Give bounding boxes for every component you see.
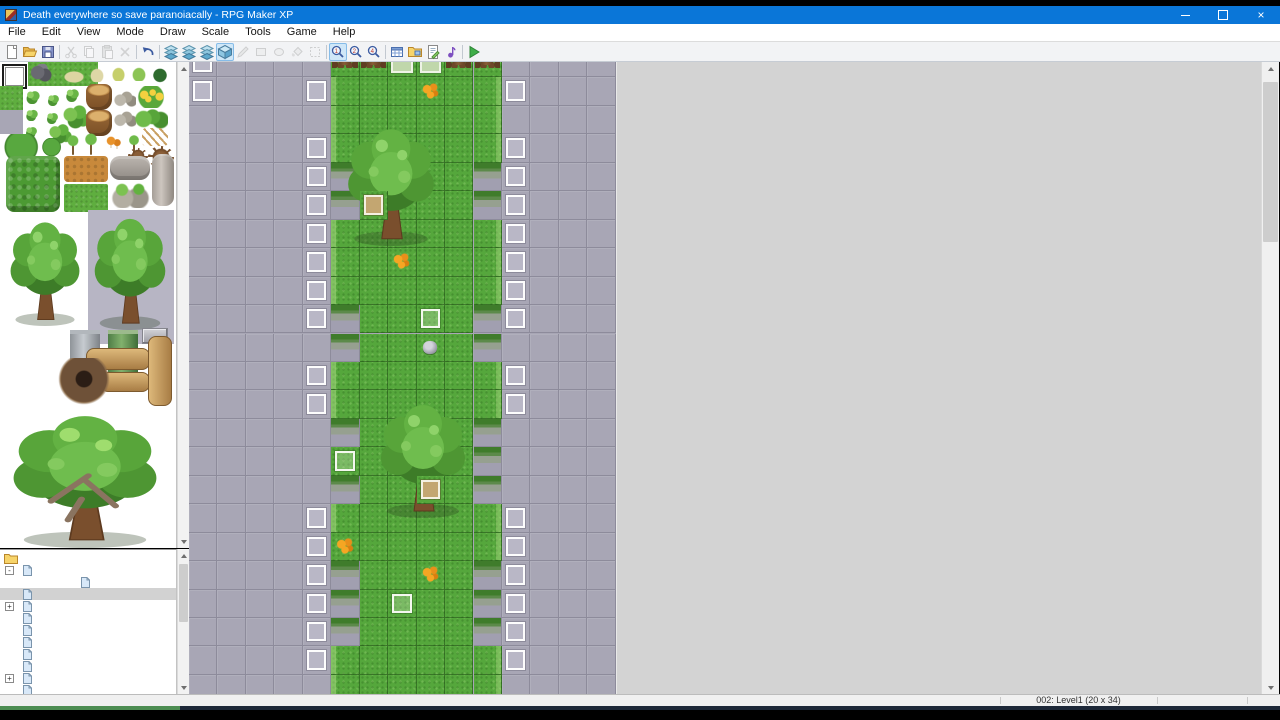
layer-3-button[interactable] xyxy=(198,43,216,61)
gray-tile[interactable] xyxy=(587,305,615,333)
gray-tile[interactable] xyxy=(587,362,615,390)
tree-item-level7[interactable] xyxy=(0,660,176,672)
gray-tile[interactable] xyxy=(274,362,302,390)
cliff-ledge-tile[interactable] xyxy=(331,419,359,447)
gray-tile[interactable] xyxy=(587,618,615,646)
gray-tile[interactable] xyxy=(530,220,558,248)
cliff-ledge-tile[interactable] xyxy=(474,590,502,618)
palette-tile-bush-dark[interactable] xyxy=(150,66,170,83)
grass-tile[interactable] xyxy=(445,646,473,674)
grass-tile[interactable] xyxy=(445,590,473,618)
gray-tile[interactable] xyxy=(246,618,274,646)
gray-tile[interactable] xyxy=(274,106,302,134)
menu-item-edit[interactable]: Edit xyxy=(34,24,69,41)
gray-tile[interactable] xyxy=(189,277,217,305)
gray-tile[interactable] xyxy=(217,220,245,248)
palette-tile-log-tall[interactable] xyxy=(152,154,174,206)
grass-right-edge[interactable] xyxy=(474,277,502,305)
gray-tile[interactable] xyxy=(189,561,217,589)
event-box-on-gray[interactable] xyxy=(303,504,331,532)
gray-tile[interactable] xyxy=(303,334,331,362)
event-box-on-gray[interactable] xyxy=(502,590,530,618)
grass-tile[interactable] xyxy=(417,248,445,276)
grass-left-edge[interactable] xyxy=(331,646,359,674)
cliff-ledge-tile[interactable] xyxy=(474,305,502,333)
gray-tile[interactable] xyxy=(217,305,245,333)
grass-tile[interactable] xyxy=(445,675,473,694)
event-box-on-gray[interactable] xyxy=(502,163,530,191)
menu-item-scale[interactable]: Scale xyxy=(194,24,238,41)
grass-tile[interactable] xyxy=(445,362,473,390)
gray-tile[interactable] xyxy=(217,447,245,475)
gray-tile[interactable] xyxy=(587,419,615,447)
gray-tile[interactable] xyxy=(530,334,558,362)
gray-tile[interactable] xyxy=(246,390,274,418)
cliff-ledge-tile[interactable] xyxy=(474,618,502,646)
gray-tile[interactable] xyxy=(189,675,217,694)
event-box-on-gray[interactable] xyxy=(303,277,331,305)
cliff-ledge-tile[interactable] xyxy=(474,334,502,362)
gray-tile[interactable] xyxy=(189,220,217,248)
scroll-thumb[interactable] xyxy=(1263,82,1278,242)
grass-tile[interactable] xyxy=(360,561,388,589)
event-box-on-gray[interactable] xyxy=(502,533,530,561)
palette-tile-rocks-mossy[interactable] xyxy=(110,182,150,208)
event-box-on-gray[interactable] xyxy=(303,191,331,219)
grass-tile[interactable] xyxy=(360,618,388,646)
grass-tile[interactable] xyxy=(445,77,473,105)
tree-item-level8[interactable]: + xyxy=(0,672,176,684)
gray-tile[interactable] xyxy=(217,504,245,532)
tree-item-level9[interactable] xyxy=(0,684,176,694)
gray-tile[interactable] xyxy=(274,163,302,191)
grass-tile[interactable] xyxy=(388,277,416,305)
event-box-green[interactable] xyxy=(388,62,416,77)
gray-tile[interactable] xyxy=(274,220,302,248)
gray-tile[interactable] xyxy=(189,106,217,134)
grass-right-edge[interactable] xyxy=(474,533,502,561)
gray-tile[interactable] xyxy=(246,334,274,362)
gray-tile[interactable] xyxy=(274,646,302,674)
tree-item-level2[interactable]: + xyxy=(0,600,176,612)
grass-tile[interactable] xyxy=(388,305,416,333)
event-box-on-gray[interactable] xyxy=(303,134,331,162)
cliff-ledge-tile[interactable] xyxy=(331,590,359,618)
gray-tile[interactable] xyxy=(587,134,615,162)
gray-tile[interactable] xyxy=(189,362,217,390)
gray-tile[interactable] xyxy=(274,277,302,305)
gray-tile[interactable] xyxy=(530,419,558,447)
gray-tile[interactable] xyxy=(189,305,217,333)
gray-tile[interactable] xyxy=(217,62,245,77)
gray-tile[interactable] xyxy=(246,504,274,532)
event-box-dirt[interactable] xyxy=(417,476,445,504)
gray-tile[interactable] xyxy=(217,618,245,646)
gray-tile[interactable] xyxy=(217,533,245,561)
palette-tile-bush[interactable] xyxy=(64,88,80,102)
gray-tile[interactable] xyxy=(587,248,615,276)
gray-tile[interactable] xyxy=(559,447,587,475)
menu-item-mode[interactable]: Mode xyxy=(108,24,152,41)
gray-tile[interactable] xyxy=(530,646,558,674)
event-box-on-gray[interactable] xyxy=(502,134,530,162)
tree-item-level5[interactable] xyxy=(0,636,176,648)
gray-tile[interactable] xyxy=(530,163,558,191)
cliff-ledge-tile[interactable] xyxy=(331,476,359,504)
grass-right-edge[interactable] xyxy=(474,77,502,105)
playtest-button[interactable] xyxy=(465,43,483,61)
tileset-palette[interactable] xyxy=(0,62,177,548)
gray-tile[interactable] xyxy=(246,77,274,105)
event-box-on-gray[interactable] xyxy=(502,277,530,305)
event-box-on-gray[interactable] xyxy=(303,618,331,646)
gray-tile[interactable] xyxy=(274,504,302,532)
gray-tile[interactable] xyxy=(246,476,274,504)
tree-trunk-top[interactable] xyxy=(445,62,473,77)
tree-trunk-top[interactable] xyxy=(360,62,388,77)
gray-tile[interactable] xyxy=(274,675,302,694)
palette-tile-sapling[interactable] xyxy=(66,134,80,158)
gray-tile[interactable] xyxy=(587,476,615,504)
scroll-down-arrow[interactable] xyxy=(178,535,189,548)
palette-tile-bushes-green[interactable] xyxy=(134,108,168,130)
event-box-on-gray[interactable] xyxy=(303,646,331,674)
gray-tile[interactable] xyxy=(530,62,558,77)
event-box-on-gray[interactable] xyxy=(502,390,530,418)
gray-tile[interactable] xyxy=(246,447,274,475)
event-box-on-gray[interactable] xyxy=(502,646,530,674)
cliff-ledge-tile[interactable] xyxy=(331,618,359,646)
event-box-on-gray[interactable] xyxy=(502,191,530,219)
gray-tile[interactable] xyxy=(502,334,530,362)
gray-tile[interactable] xyxy=(559,106,587,134)
cliff-ledge-tile[interactable] xyxy=(474,447,502,475)
palette-scrollbar[interactable] xyxy=(177,62,189,548)
event-box-on-gray[interactable] xyxy=(502,618,530,646)
grass-tile[interactable] xyxy=(360,646,388,674)
collapse-toggle[interactable]: - xyxy=(5,566,14,575)
tree-item-level0[interactable]: - xyxy=(0,564,176,576)
grass-tile[interactable] xyxy=(445,163,473,191)
gray-tile[interactable] xyxy=(274,305,302,333)
palette-tile-tuft-green[interactable] xyxy=(130,65,148,81)
gray-tile[interactable] xyxy=(587,106,615,134)
gray-tile[interactable] xyxy=(217,334,245,362)
grass-tile[interactable] xyxy=(360,533,388,561)
gray-tile[interactable] xyxy=(217,362,245,390)
gray-tile[interactable] xyxy=(502,62,530,77)
undo-button[interactable] xyxy=(139,43,157,61)
gray-tile[interactable] xyxy=(530,447,558,475)
maximize-button[interactable] xyxy=(1204,6,1242,24)
gray-tile[interactable] xyxy=(502,447,530,475)
gray-tile[interactable] xyxy=(217,134,245,162)
orange-flowers[interactable] xyxy=(331,533,359,561)
palette-tile-bush[interactable] xyxy=(45,112,59,124)
expand-toggle[interactable]: + xyxy=(5,602,14,611)
gray-tile[interactable] xyxy=(274,533,302,561)
event-box-green[interactable] xyxy=(417,62,445,77)
gray-tile[interactable] xyxy=(530,504,558,532)
event-box-on-gray[interactable] xyxy=(189,62,217,77)
scroll-up-arrow[interactable] xyxy=(178,549,189,562)
palette-tile-hedge[interactable] xyxy=(6,156,60,212)
tree-item-level6[interactable] xyxy=(0,648,176,660)
gray-tile[interactable] xyxy=(559,646,587,674)
tree-trunk-top[interactable] xyxy=(474,62,502,77)
grass-right-edge[interactable] xyxy=(474,504,502,532)
orange-flowers[interactable] xyxy=(388,248,416,276)
event-box-on-gray[interactable] xyxy=(502,504,530,532)
gray-tile[interactable] xyxy=(587,163,615,191)
event-box-on-gray[interactable] xyxy=(502,220,530,248)
gray-tile[interactable] xyxy=(587,561,615,589)
gray-tile[interactable] xyxy=(189,163,217,191)
save-project-button[interactable] xyxy=(39,43,57,61)
grass-right-edge[interactable] xyxy=(474,220,502,248)
gray-tile[interactable] xyxy=(246,419,274,447)
gray-tile[interactable] xyxy=(246,248,274,276)
event-box-on-gray[interactable] xyxy=(303,163,331,191)
gray-tile[interactable] xyxy=(559,191,587,219)
palette-tile-big-tree[interactable] xyxy=(0,408,170,548)
gray-tile[interactable] xyxy=(587,646,615,674)
gray-tile[interactable] xyxy=(274,77,302,105)
menu-item-help[interactable]: Help xyxy=(325,24,364,41)
grass-right-edge[interactable] xyxy=(474,248,502,276)
grass-tile[interactable] xyxy=(445,277,473,305)
new-project-button[interactable] xyxy=(3,43,21,61)
gray-tile[interactable] xyxy=(303,419,331,447)
cliff-ledge-tile[interactable] xyxy=(474,419,502,447)
palette-tile-log-gray[interactable] xyxy=(110,156,150,180)
gray-tile[interactable] xyxy=(559,134,587,162)
gray-tile[interactable] xyxy=(559,277,587,305)
gray-tile[interactable] xyxy=(587,590,615,618)
event-box-on-gray[interactable] xyxy=(303,77,331,105)
gray-tile[interactable] xyxy=(502,476,530,504)
event-box-on-gray[interactable] xyxy=(502,248,530,276)
grass-tile[interactable] xyxy=(388,334,416,362)
event-box-on-gray[interactable] xyxy=(303,220,331,248)
gray-tile[interactable] xyxy=(189,191,217,219)
gray-tile[interactable] xyxy=(530,134,558,162)
gray-tile[interactable] xyxy=(303,476,331,504)
grass-left-edge[interactable] xyxy=(331,248,359,276)
close-button[interactable]: × xyxy=(1242,6,1280,24)
gray-tile[interactable] xyxy=(274,134,302,162)
gray-tile[interactable] xyxy=(246,646,274,674)
gray-tile[interactable] xyxy=(530,106,558,134)
gray-tile[interactable] xyxy=(274,618,302,646)
gray-tile[interactable] xyxy=(559,362,587,390)
grass-left-edge[interactable] xyxy=(331,362,359,390)
menu-item-tools[interactable]: Tools xyxy=(237,24,279,41)
orange-flowers[interactable] xyxy=(417,561,445,589)
gray-tile[interactable] xyxy=(559,248,587,276)
gray-tile[interactable] xyxy=(246,220,274,248)
gray-tile[interactable] xyxy=(274,191,302,219)
gray-tile[interactable] xyxy=(559,590,587,618)
grass-tile[interactable] xyxy=(417,646,445,674)
event-box-on-grass[interactable] xyxy=(417,305,445,333)
gray-tile[interactable] xyxy=(559,163,587,191)
gray-tile[interactable] xyxy=(189,419,217,447)
grass-tile[interactable] xyxy=(417,618,445,646)
palette-tile-tree-large[interactable] xyxy=(4,216,86,326)
event-box-on-gray[interactable] xyxy=(502,77,530,105)
grass-right-edge[interactable] xyxy=(474,675,502,694)
gray-tile[interactable] xyxy=(246,561,274,589)
palette-tile-tuft-pale[interactable] xyxy=(88,66,106,82)
cliff-ledge-tile[interactable] xyxy=(331,334,359,362)
cliff-ledge-tile[interactable] xyxy=(474,191,502,219)
gray-tile[interactable] xyxy=(217,191,245,219)
gray-tile[interactable] xyxy=(530,476,558,504)
event-box-on-gray[interactable] xyxy=(189,77,217,105)
palette-tile-grass-bright[interactable] xyxy=(64,184,108,212)
gray-tile[interactable] xyxy=(502,106,530,134)
event-box-on-gray[interactable] xyxy=(303,362,331,390)
expand-toggle[interactable]: + xyxy=(5,674,14,683)
cliff-ledge-tile[interactable] xyxy=(331,305,359,333)
gray-tile[interactable] xyxy=(587,675,615,694)
gray-tile[interactable] xyxy=(274,561,302,589)
gray-tile[interactable] xyxy=(587,191,615,219)
palette-tile-stones[interactable] xyxy=(114,110,136,127)
gray-tile[interactable] xyxy=(189,334,217,362)
gray-tile[interactable] xyxy=(217,277,245,305)
map-editor-view[interactable] xyxy=(189,62,1261,694)
gray-tile[interactable] xyxy=(530,77,558,105)
gray-tile[interactable] xyxy=(530,561,558,589)
scroll-up-arrow[interactable] xyxy=(1262,62,1279,75)
gray-tile[interactable] xyxy=(530,248,558,276)
gray-tile[interactable] xyxy=(274,447,302,475)
grass-tile[interactable] xyxy=(445,106,473,134)
gray-tile[interactable] xyxy=(246,106,274,134)
palette-tile-mushrooms[interactable] xyxy=(104,134,124,152)
event-box-dirt[interactable] xyxy=(360,191,388,219)
gray-tile[interactable] xyxy=(274,62,302,77)
zoom-1-4-button[interactable]: 4 xyxy=(365,43,383,61)
database-button[interactable] xyxy=(388,43,406,61)
grass-right-edge[interactable] xyxy=(474,390,502,418)
gray-tile[interactable] xyxy=(217,561,245,589)
gray-tile[interactable] xyxy=(189,390,217,418)
grass-tile[interactable] xyxy=(445,334,473,362)
gray-tile[interactable] xyxy=(246,191,274,219)
gray-tile[interactable] xyxy=(559,334,587,362)
event-box-on-gray[interactable] xyxy=(502,305,530,333)
event-box-on-gray[interactable] xyxy=(303,533,331,561)
gray-tile[interactable] xyxy=(246,163,274,191)
grass-right-edge[interactable] xyxy=(474,646,502,674)
gray-tile[interactable] xyxy=(559,305,587,333)
grass-tile[interactable] xyxy=(388,618,416,646)
event-box-on-grass[interactable] xyxy=(331,447,359,475)
gray-tile[interactable] xyxy=(303,62,331,77)
grass-tile[interactable] xyxy=(360,590,388,618)
gray-tile[interactable] xyxy=(587,533,615,561)
grass-tile[interactable] xyxy=(360,305,388,333)
gray-tile[interactable] xyxy=(530,390,558,418)
gray-tile[interactable] xyxy=(189,646,217,674)
grass-tile[interactable] xyxy=(360,248,388,276)
grass-tile[interactable] xyxy=(445,618,473,646)
palette-tile-tuft-yellow[interactable] xyxy=(110,65,127,81)
scroll-down-arrow[interactable] xyxy=(1262,681,1279,694)
gray-tile[interactable] xyxy=(530,362,558,390)
palette-tile-trunk-hole[interactable] xyxy=(58,358,110,408)
gray-tile[interactable] xyxy=(587,277,615,305)
gray-tile[interactable] xyxy=(559,476,587,504)
palette-tile-tree-large[interactable] xyxy=(88,212,172,330)
gray-tile[interactable] xyxy=(587,62,615,77)
sound-test-button[interactable] xyxy=(442,43,460,61)
palette-tile-flowers-yellow[interactable] xyxy=(134,86,168,108)
gray-tile[interactable] xyxy=(587,334,615,362)
gray-tile[interactable] xyxy=(559,561,587,589)
event-layer-button[interactable] xyxy=(216,43,234,61)
menu-item-game[interactable]: Game xyxy=(279,24,325,41)
scroll-up-arrow[interactable] xyxy=(178,62,189,75)
zoom-1-1-button[interactable]: 1 xyxy=(329,43,347,61)
gray-tile[interactable] xyxy=(587,77,615,105)
gray-tile[interactable] xyxy=(217,675,245,694)
tree-scrollbar[interactable] xyxy=(177,549,189,694)
gray-tile[interactable] xyxy=(246,590,274,618)
grass-tile[interactable] xyxy=(417,675,445,694)
grass-left-edge[interactable] xyxy=(331,77,359,105)
orange-flowers[interactable] xyxy=(417,77,445,105)
gray-tile[interactable] xyxy=(217,646,245,674)
gray-tile[interactable] xyxy=(246,277,274,305)
grass-left-edge[interactable] xyxy=(331,504,359,532)
event-box-on-gray[interactable] xyxy=(502,362,530,390)
grass-right-edge[interactable] xyxy=(474,106,502,134)
gray-tile[interactable] xyxy=(274,390,302,418)
gray-tile[interactable] xyxy=(189,504,217,532)
map-vertical-scrollbar[interactable] xyxy=(1261,62,1279,694)
gray-tile[interactable] xyxy=(530,618,558,646)
gray-tile[interactable] xyxy=(189,618,217,646)
gray-tile[interactable] xyxy=(559,504,587,532)
gray-tile[interactable] xyxy=(587,390,615,418)
gray-tile[interactable] xyxy=(189,447,217,475)
gray-tile[interactable] xyxy=(587,220,615,248)
event-box-on-gray[interactable] xyxy=(303,248,331,276)
palette-tile-lilypad[interactable] xyxy=(42,138,62,156)
grass-tile[interactable] xyxy=(417,362,445,390)
grass-tile[interactable] xyxy=(445,220,473,248)
gray-tile[interactable] xyxy=(189,476,217,504)
scroll-thumb[interactable] xyxy=(179,564,188,622)
grass-tile[interactable] xyxy=(360,675,388,694)
menu-item-view[interactable]: View xyxy=(69,24,109,41)
cliff-ledge-tile[interactable] xyxy=(474,561,502,589)
gray-tile[interactable] xyxy=(217,77,245,105)
layer-2-button[interactable] xyxy=(180,43,198,61)
event-box-on-gray[interactable] xyxy=(303,561,331,589)
gray-tile[interactable] xyxy=(559,618,587,646)
grass-tile[interactable] xyxy=(417,533,445,561)
palette-tile-stones[interactable] xyxy=(114,90,136,107)
grass-tile[interactable] xyxy=(388,533,416,561)
gray-tile[interactable] xyxy=(246,62,274,77)
gray-tile[interactable] xyxy=(502,419,530,447)
tree-trunk-top[interactable] xyxy=(331,62,359,77)
